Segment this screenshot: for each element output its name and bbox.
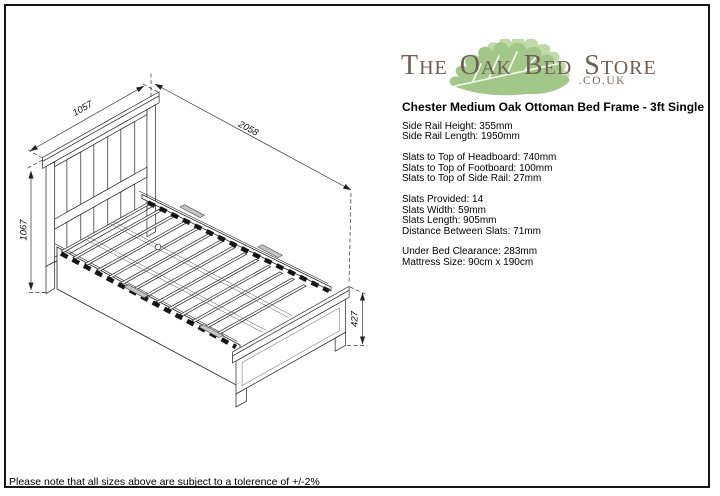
spec-list: Side Rail Height: 355mm Side Rail Length… [402, 122, 556, 279]
spec-line: Mattress Size: 90cm x 190cm [402, 258, 556, 268]
dim-label-bed-length: 2058 [235, 118, 260, 139]
spec-line: Distance Between Slats: 71mm [402, 227, 556, 237]
spec-line: Slats Length: 905mm [402, 216, 556, 226]
brand-suffix: .CO.UK [402, 75, 626, 87]
spec-group-slat-heights: Slats to Top of Headboard: 740mm Slats t… [402, 153, 556, 184]
footboard [233, 286, 350, 409]
spec-group-clearance: Under Bed Clearance: 283mm Mattress Size… [402, 247, 556, 268]
tolerance-note: Please note that all sizes above are sub… [9, 476, 320, 488]
dim-label-headboard-height: 1067 [19, 219, 30, 241]
product-title: Chester Medium Oak Ottoman Bed Frame - 3… [402, 100, 704, 114]
spec-line: Side Rail Length: 1950mm [402, 132, 556, 142]
spec-line: Slats to Top of Side Rail: 27mm [402, 174, 556, 184]
spec-group-slats: Slats Provided: 14 Slats Width: 59mm Sla… [402, 195, 556, 237]
dim-label-footboard-height: 427 [350, 310, 361, 327]
center-hole [155, 244, 161, 250]
spec-group-side-rail: Side Rail Height: 355mm Side Rail Length… [402, 122, 556, 143]
